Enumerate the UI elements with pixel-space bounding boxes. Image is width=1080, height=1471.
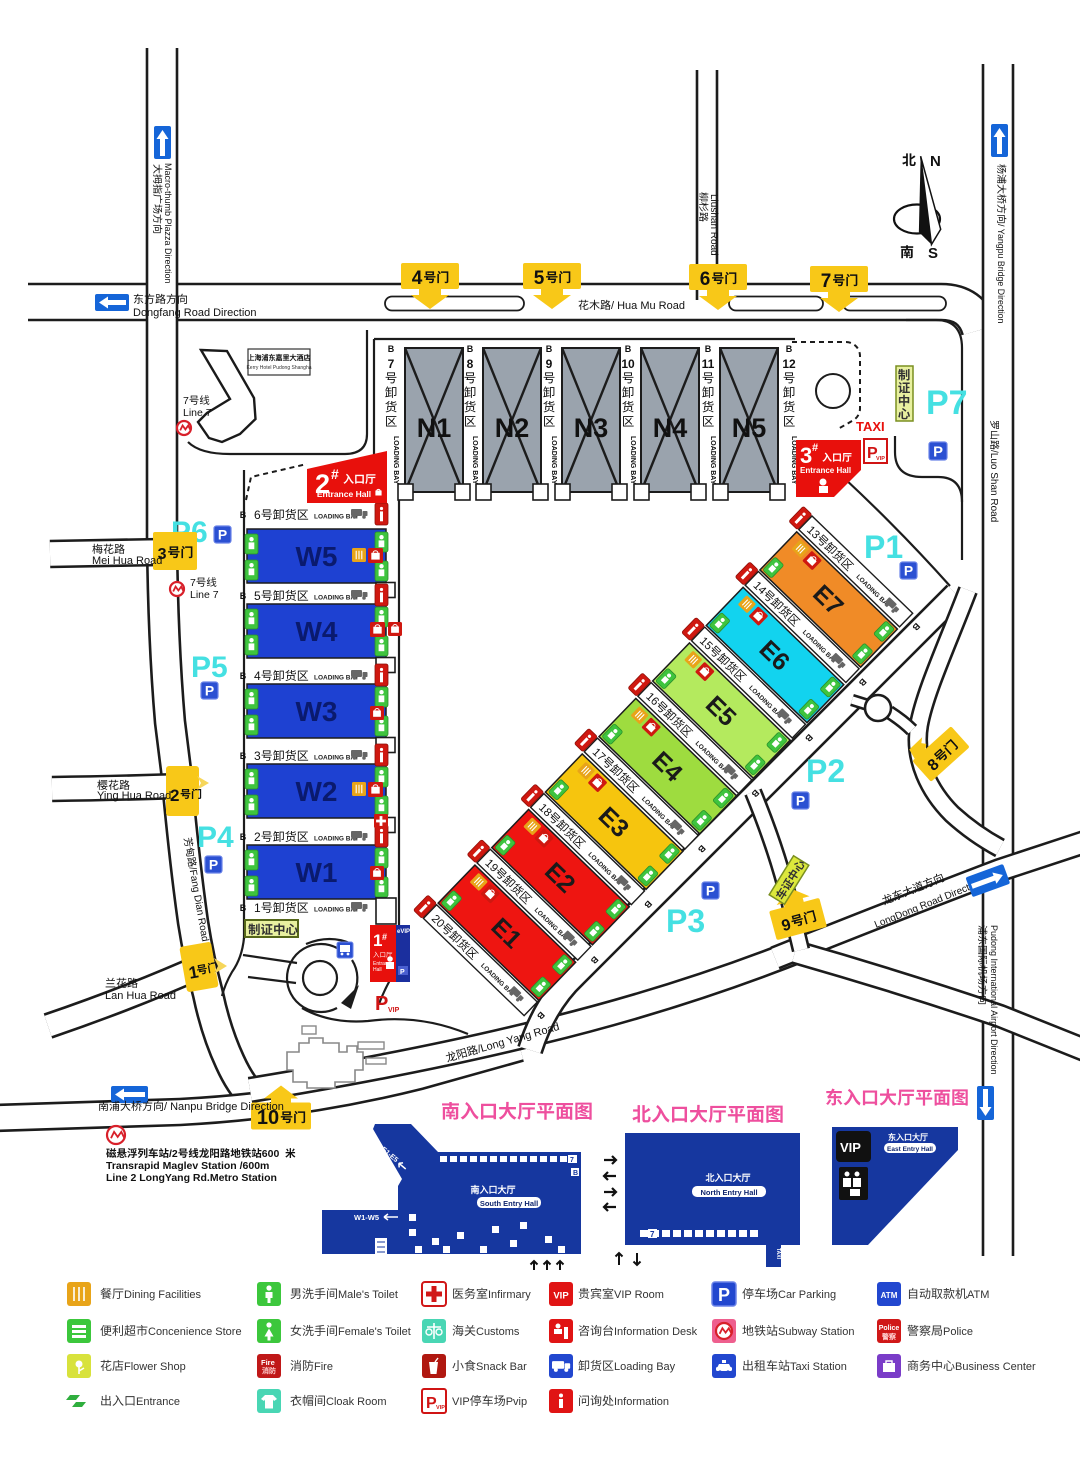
svg-text:N1: N1 — [417, 413, 452, 443]
svg-text:TAXI: TAXI — [775, 1248, 781, 1260]
svg-text:P: P — [375, 993, 388, 1015]
svg-text:Dongfang Road Direction: Dongfang Road Direction — [133, 307, 257, 319]
svg-text:B: B — [240, 832, 247, 842]
svg-text:Lan Hua Road: Lan Hua Road — [105, 990, 176, 1002]
svg-text:Information Desk: Information Desk — [614, 1326, 698, 1338]
svg-text:Customs: Customs — [476, 1326, 520, 1338]
svg-text:Fire: Fire — [261, 1358, 275, 1367]
svg-text:7: 7 — [570, 1157, 574, 1164]
svg-text:Business Center: Business Center — [955, 1361, 1036, 1373]
svg-text:7: 7 — [190, 577, 196, 589]
svg-text:N: N — [930, 153, 941, 170]
svg-text:B: B — [240, 671, 247, 681]
svg-text:ATM: ATM — [881, 1291, 898, 1300]
svg-text:P4: P4 — [197, 821, 234, 854]
svg-text:P3: P3 — [666, 903, 705, 939]
svg-text:P: P — [218, 527, 227, 543]
svg-text:P5: P5 — [191, 651, 228, 684]
svg-text:4: 4 — [254, 669, 261, 683]
svg-text:LOADING BAY: LOADING BAY — [471, 436, 478, 485]
svg-text:Mei Hua Road: Mei Hua Road — [92, 555, 162, 567]
svg-text:P1: P1 — [864, 529, 903, 565]
svg-text:B: B — [546, 344, 553, 354]
svg-text:警察: 警察 — [882, 1332, 897, 1341]
svg-text:5: 5 — [534, 268, 545, 289]
svg-text:N2: N2 — [495, 413, 530, 443]
svg-text:P: P — [400, 969, 405, 976]
svg-text:P: P — [904, 563, 913, 579]
svg-text:Police: Police — [943, 1326, 973, 1338]
svg-text:VIP: VIP — [553, 1291, 569, 1302]
svg-text:VIP Room: VIP Room — [614, 1289, 664, 1301]
svg-text:9: 9 — [546, 357, 553, 371]
svg-text:P7: P7 — [926, 384, 968, 422]
svg-text:B: B — [240, 903, 247, 913]
svg-text:P: P — [796, 793, 805, 809]
svg-text:W1: W1 — [296, 857, 338, 888]
svg-text:B: B — [786, 344, 793, 354]
svg-text:7: 7 — [388, 357, 395, 371]
svg-text:P: P — [209, 857, 218, 873]
svg-text:VIP: VIP — [876, 456, 885, 462]
svg-text:P: P — [706, 883, 715, 899]
svg-text:11: 11 — [702, 357, 715, 371]
svg-text:1: 1 — [254, 901, 261, 915]
svg-text:LOADING BAY: LOADING BAY — [709, 436, 716, 485]
svg-text:上海浦东嘉里大酒店: 上海浦东嘉里大酒店 — [248, 353, 311, 362]
svg-text:B: B — [625, 344, 632, 354]
svg-text:North Entry Hall: North Entry Hall — [700, 1188, 757, 1197]
svg-text:ATM: ATM — [967, 1289, 989, 1301]
svg-text:Snack Bar: Snack Bar — [476, 1361, 527, 1373]
svg-text:#: # — [331, 466, 339, 482]
svg-text:/ Yangpu Bridge Direction: / Yangpu Bridge Direction — [996, 224, 1006, 324]
svg-text:Hall: Hall — [373, 967, 382, 973]
svg-text:8: 8 — [467, 357, 474, 371]
svg-text:5: 5 — [254, 589, 261, 603]
svg-text:VIP: VIP — [388, 1007, 400, 1014]
svg-text:W5: W5 — [296, 541, 338, 572]
svg-text:P2: P2 — [806, 753, 845, 789]
svg-text:Information: Information — [614, 1396, 669, 1408]
svg-text:Entrance Hall: Entrance Hall — [317, 489, 371, 499]
svg-text:VIP: VIP — [452, 1396, 470, 1408]
svg-text:VIP: VIP — [840, 1140, 861, 1155]
svg-text:Male's Toilet: Male's Toilet — [338, 1289, 398, 1301]
svg-text:TAXI: TAXI — [856, 419, 885, 434]
svg-text:Transrapid Maglev Station /60: Transrapid Maglev Station /600m — [106, 1160, 269, 1172]
svg-text:Pvip: Pvip — [506, 1396, 527, 1408]
svg-text:Line 2 LongYang Rd.Metro Stati: Line 2 LongYang Rd.Metro Station — [106, 1172, 277, 1184]
svg-text:6: 6 — [254, 508, 261, 522]
svg-text:P: P — [718, 1285, 730, 1305]
svg-text:2: 2 — [170, 786, 179, 805]
svg-text:eVIP: eVIP — [397, 929, 410, 935]
svg-text:Cloak Room: Cloak Room — [326, 1396, 387, 1408]
svg-text:B: B — [240, 591, 247, 601]
svg-text:Ying Hua Road: Ying Hua Road — [97, 790, 171, 802]
svg-text:#: # — [382, 932, 387, 942]
svg-text:S: S — [928, 245, 938, 262]
svg-text:Loading Bay: Loading Bay — [614, 1361, 676, 1373]
svg-text:N4: N4 — [653, 413, 688, 443]
svg-text:/2: /2 — [169, 1148, 178, 1160]
svg-text:/ Nanpu Bridge Direction: / Nanpu Bridge Direction — [164, 1101, 284, 1113]
svg-text:6: 6 — [700, 269, 711, 290]
svg-text:Flower Shop: Flower Shop — [124, 1361, 186, 1373]
svg-text:Taxi Station: Taxi Station — [790, 1361, 847, 1373]
svg-text:北入口大厅: 北入口大厅 — [705, 1172, 750, 1183]
svg-text:B: B — [573, 1170, 578, 1177]
svg-text:12: 12 — [782, 357, 796, 371]
svg-text:Entrance Hall: Entrance Hall — [800, 466, 851, 475]
svg-text:7: 7 — [650, 1230, 655, 1239]
svg-text:B: B — [240, 510, 247, 520]
svg-text:Concenience Store: Concenience Store — [148, 1326, 242, 1338]
svg-text:3: 3 — [800, 443, 812, 468]
svg-text:P: P — [933, 444, 943, 460]
svg-text:Line 7: Line 7 — [190, 589, 219, 601]
svg-text:4: 4 — [412, 268, 423, 289]
svg-text:W3: W3 — [296, 696, 338, 727]
svg-text:Police: Police — [879, 1325, 900, 1332]
svg-text:Liushan Road: Liushan Road — [708, 194, 719, 256]
svg-text:600: 600 — [262, 1148, 280, 1160]
svg-text:/Luo Shan Road: /Luo Shan Road — [988, 450, 999, 522]
svg-text:LOADING BAY: LOADING BAY — [550, 436, 557, 485]
svg-text:3: 3 — [254, 749, 261, 763]
svg-text:Female's Toilet: Female's Toilet — [338, 1326, 411, 1338]
svg-text:B: B — [467, 344, 474, 354]
svg-text:Subway Station: Subway Station — [778, 1326, 854, 1338]
svg-text:南入口大厅: 南入口大厅 — [470, 1184, 515, 1195]
svg-text:VIP: VIP — [436, 1405, 445, 1411]
svg-text:B: B — [388, 344, 395, 354]
svg-text:Kerry Hotel Pudong Shangha: Kerry Hotel Pudong Shangha — [246, 365, 311, 371]
svg-text:East Entry Hall: East Entry Hall — [887, 1146, 933, 1153]
svg-text:7: 7 — [183, 395, 189, 407]
svg-text:消防: 消防 — [262, 1366, 276, 1375]
svg-text:Macro-thumb Plazza Direction: Macro-thumb Plazza Direction — [163, 163, 173, 284]
svg-text:Entrance: Entrance — [136, 1396, 180, 1408]
svg-text:Fire: Fire — [314, 1361, 333, 1373]
svg-text:W4: W4 — [296, 616, 338, 647]
svg-text:P: P — [205, 683, 214, 699]
svg-text:Car Parking: Car Parking — [778, 1289, 836, 1301]
svg-text:W1-W5: W1-W5 — [354, 1213, 379, 1222]
svg-text:Line 7: Line 7 — [183, 407, 212, 419]
svg-text:Dining Facilities: Dining Facilities — [124, 1289, 202, 1301]
svg-text:Pudong International Airport D: Pudong International Airport Direction — [989, 925, 999, 1075]
svg-text:LOADING BAY: LOADING BAY — [790, 436, 797, 485]
svg-text:B: B — [705, 344, 712, 354]
svg-text:N5: N5 — [732, 413, 767, 443]
svg-text:2: 2 — [254, 830, 261, 844]
svg-text:South Entry Hall: South Entry Hall — [480, 1199, 538, 1208]
svg-text:/ Hua Mu Road: / Hua Mu Road — [611, 300, 685, 312]
svg-text:#: # — [812, 442, 818, 454]
svg-text:B: B — [240, 751, 247, 761]
svg-text:Infirmary: Infirmary — [488, 1289, 531, 1301]
svg-text:LOADING BAY: LOADING BAY — [392, 436, 399, 485]
svg-text:7: 7 — [821, 271, 832, 292]
svg-text:LOADING BAY: LOADING BAY — [629, 436, 636, 485]
svg-text:N3: N3 — [574, 413, 609, 443]
svg-text:10: 10 — [621, 357, 635, 371]
svg-text:W2: W2 — [296, 776, 338, 807]
svg-text:东入口大厅: 东入口大厅 — [888, 1132, 928, 1142]
